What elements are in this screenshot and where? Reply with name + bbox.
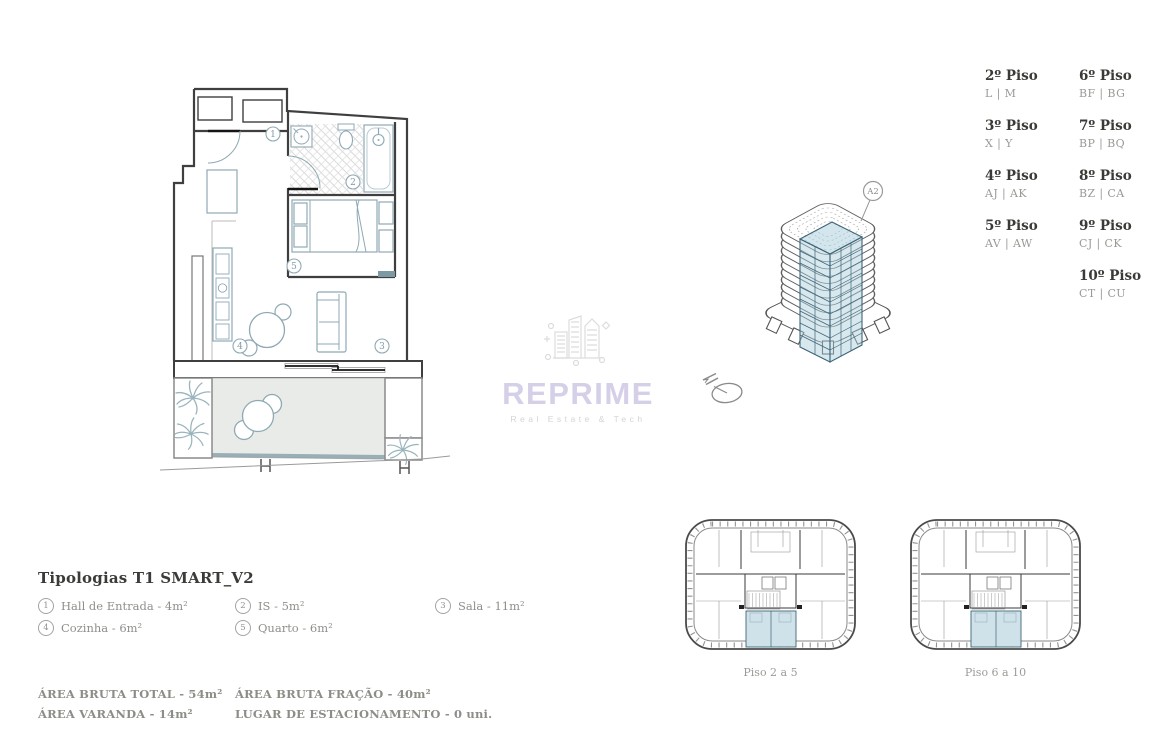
- svg-text:5: 5: [291, 262, 297, 272]
- hall-closet: [207, 170, 237, 213]
- plate-caption: Piso 6 a 10: [908, 666, 1083, 679]
- floor-entry: 3º Piso X | Y: [985, 118, 1057, 151]
- legend-number-badge: 2: [235, 598, 251, 614]
- brochure-page: 1 2 5 4 3: [0, 0, 1163, 745]
- room-label-4: 4: [233, 339, 247, 353]
- floor-plate-piso-2-5: [683, 517, 858, 652]
- floor-unit-codes: BF | BG: [1079, 87, 1151, 101]
- legend-label: Cozinha - 6m²: [61, 621, 142, 635]
- watermark-brand: REPRIME: [498, 378, 658, 410]
- room-label-3: 3: [375, 339, 389, 353]
- lugar-estacionamento: LUGAR DE ESTACIONAMENTO - 0 uni.: [235, 707, 492, 721]
- floor-entry: 7º Piso BP | BQ: [1079, 118, 1151, 151]
- floor-unit-codes: CT | CU: [1079, 287, 1151, 301]
- room-label-2: 2: [346, 175, 360, 189]
- legend-label: IS - 5m²: [258, 599, 304, 613]
- floor-unit-codes: X | Y: [985, 137, 1057, 151]
- wall-column: [192, 256, 203, 364]
- buildings-icon: [543, 310, 613, 366]
- floor-unit-codes: AJ | AK: [985, 187, 1057, 201]
- floor-unit-codes: L | M: [985, 87, 1057, 101]
- floor-label: 4º Piso: [985, 168, 1057, 185]
- svg-text:A2: A2: [866, 187, 879, 197]
- floor-label: 8º Piso: [1079, 168, 1151, 185]
- typology-legend: Tipologias T1 SMART_V2 1 Hall de Entrada…: [38, 569, 638, 649]
- floor-plate-piso-6-10: [908, 517, 1083, 652]
- floor-entry: 5º Piso AV | AW: [985, 218, 1057, 251]
- svg-text:4: 4: [237, 342, 243, 352]
- legend-item: 3 Sala - 11m²: [435, 598, 525, 614]
- floor-label: 6º Piso: [1079, 68, 1151, 85]
- legend-item: 5 Quarto - 6m²: [235, 620, 333, 636]
- legend-label: Sala - 11m²: [458, 599, 525, 613]
- floor-unit-codes: BZ | CA: [1079, 187, 1151, 201]
- legend-item: 2 IS - 5m²: [235, 598, 304, 614]
- legend-number-badge: 5: [235, 620, 251, 636]
- reprime-watermark: REPRIME Real Estate & Tech: [498, 310, 658, 424]
- legend-label: Hall de Entrada - 4m²: [61, 599, 188, 613]
- floor-label: 5º Piso: [985, 218, 1057, 235]
- apartment-floor-plan: 1 2 5 4 3: [160, 78, 450, 488]
- legend-item: 1 Hall de Entrada - 4m²: [38, 598, 188, 614]
- legend-number-badge: 3: [435, 598, 451, 614]
- floors-column-1: 2º Piso L | M 3º Piso X | Y 4º Piso AJ |…: [985, 68, 1057, 318]
- floor-label: 10º Piso: [1079, 268, 1151, 285]
- area-varanda: ÁREA VARANDA - 14m²: [38, 707, 193, 721]
- unit-tag: A2: [861, 182, 883, 222]
- kitchen-counter: [213, 248, 232, 341]
- floor-unit-codes: AV | AW: [985, 237, 1057, 251]
- wardrobe: [243, 100, 282, 122]
- north-arrow-icon: [697, 368, 752, 408]
- legend-number-badge: 4: [38, 620, 54, 636]
- floor-label: 7º Piso: [1079, 118, 1151, 135]
- wardrobe: [198, 97, 232, 120]
- floor-unit-codes: BP | BQ: [1079, 137, 1151, 151]
- building-isometric: A2: [740, 163, 916, 363]
- floor-entry: 2º Piso L | M: [985, 68, 1057, 101]
- watermark-tagline: Real Estate & Tech: [498, 414, 658, 424]
- sofa: [317, 292, 346, 352]
- legend-number-badge: 1: [38, 598, 54, 614]
- typology-title: Tipologias T1 SMART_V2: [38, 569, 638, 587]
- legend-item: 4 Cozinha - 6m²: [38, 620, 142, 636]
- posts: [261, 459, 409, 474]
- svg-text:3: 3: [379, 342, 385, 352]
- balcony-deck: [212, 378, 387, 459]
- floor-entry: 8º Piso BZ | CA: [1079, 168, 1151, 201]
- entrance-door: [208, 131, 240, 163]
- floor-entry: 4º Piso AJ | AK: [985, 168, 1057, 201]
- bed: [292, 200, 393, 252]
- dining-table: [241, 304, 291, 356]
- floor-entry: 9º Piso CJ | CK: [1079, 218, 1151, 251]
- area-bruta-fracao: ÁREA BRUTA FRAÇÃO - 40m²: [235, 687, 431, 701]
- floor-unit-codes: CJ | CK: [1079, 237, 1151, 251]
- floor-label: 2º Piso: [985, 68, 1057, 85]
- floors-column-2: 6º Piso BF | BG 7º Piso BP | BQ 8º Piso …: [1079, 68, 1151, 318]
- room-label-1: 1: [266, 127, 280, 141]
- highlighted-unit-stack: [800, 222, 862, 362]
- floor-label: 9º Piso: [1079, 218, 1151, 235]
- plate-caption: Piso 2 a 5: [683, 666, 858, 679]
- svg-text:1: 1: [270, 130, 276, 140]
- room-label-5: 5: [287, 259, 301, 273]
- legend-label: Quarto - 6m²: [258, 621, 333, 635]
- floor-units-legend: 2º Piso L | M 3º Piso X | Y 4º Piso AJ |…: [985, 68, 1151, 318]
- wall-accent: [378, 271, 395, 277]
- floor-entry: 10º Piso CT | CU: [1079, 268, 1151, 301]
- floor-entry: 6º Piso BF | BG: [1079, 68, 1151, 101]
- svg-text:2: 2: [350, 178, 356, 188]
- planter-right: [385, 378, 422, 438]
- floor-label: 3º Piso: [985, 118, 1057, 135]
- area-bruta-total: ÁREA BRUTA TOTAL - 54m²: [38, 687, 222, 701]
